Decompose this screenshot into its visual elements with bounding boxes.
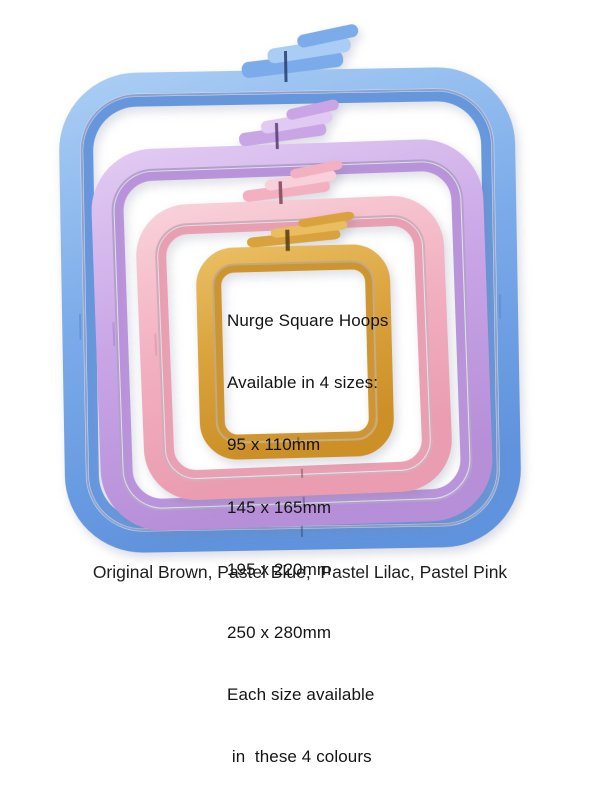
hoop-clasp bbox=[237, 98, 341, 150]
hoop-notch bbox=[155, 334, 156, 356]
info-line-size-1: 95 x 110mm bbox=[227, 435, 389, 456]
clasp-screw-slot bbox=[280, 181, 281, 204]
info-line-size-2: 145 x 165mm bbox=[227, 498, 389, 519]
product-info-panel: Nurge Square Hoops Available in 4 sizes:… bbox=[227, 269, 389, 810]
info-line-subtitle: Available in 4 sizes: bbox=[227, 373, 389, 394]
product-photo: Nurge Square Hoops Available in 4 sizes:… bbox=[0, 0, 600, 600]
hoop-notch bbox=[113, 322, 114, 346]
color-options-caption: Original Brown, Pastel Blue, Pastel Lila… bbox=[0, 562, 600, 583]
info-line-size-4: 250 x 280mm bbox=[227, 623, 389, 644]
info-line-note-1: Each size available bbox=[227, 685, 389, 706]
info-line-note-2: in these 4 colours bbox=[227, 747, 389, 768]
clasp-screw-slot bbox=[276, 123, 277, 149]
clasp-screw-slot bbox=[285, 51, 286, 82]
clasp-screw-slot bbox=[287, 230, 288, 251]
info-line-title: Nurge Square Hoops bbox=[227, 311, 389, 332]
